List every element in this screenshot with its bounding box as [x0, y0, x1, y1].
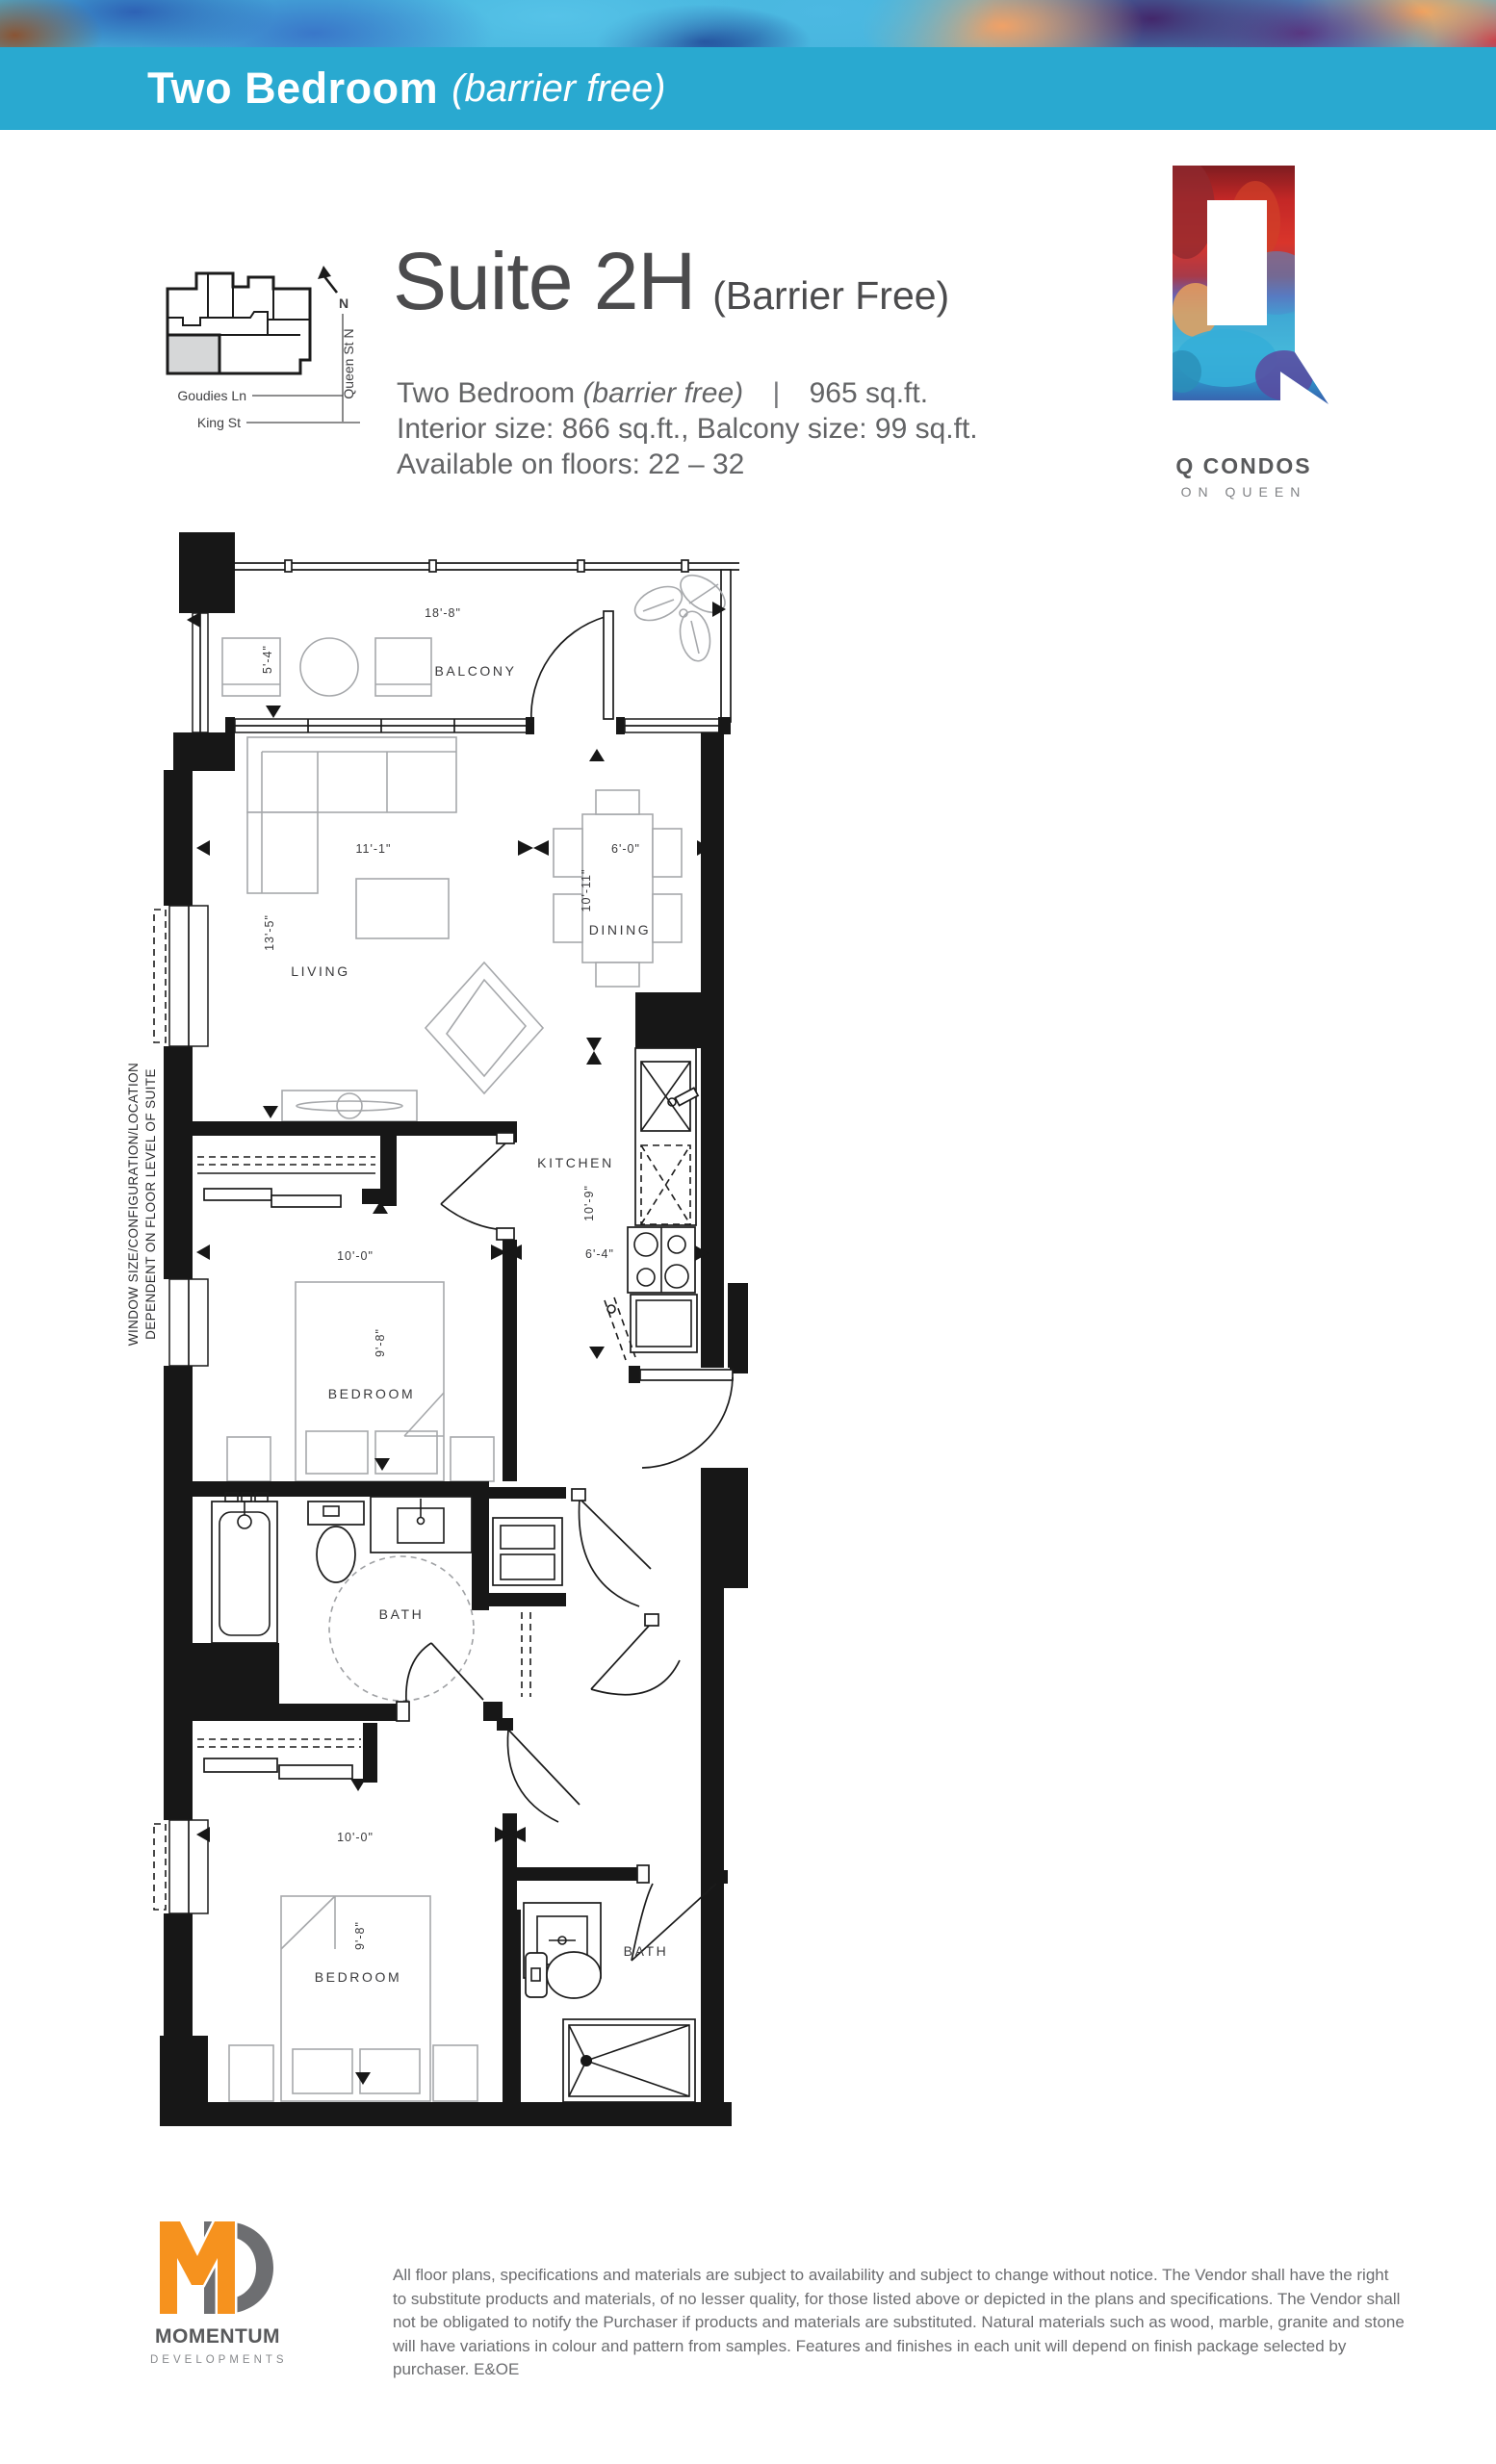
goudies-lane: Goudies Ln [177, 388, 343, 403]
turning-circle [329, 1556, 474, 1701]
dim-living-width: 11'-1" [356, 842, 392, 856]
queen-street-label: Queen St N [341, 328, 356, 398]
brand-tagline: ON QUEEN [1157, 484, 1330, 500]
q-condos-logo: Q CONDOS ON QUEEN [1157, 166, 1330, 500]
bedroom2: 10'-0" 9'-8" BEDROOM [196, 1723, 526, 2101]
kitchen-sink [641, 1062, 698, 1131]
coffee-table [356, 879, 449, 938]
marker-down [589, 1347, 605, 1359]
north-label: N [339, 295, 348, 311]
q-mark [1157, 166, 1330, 435]
balcony: 18'-8" 5'-4" BALCONY [173, 532, 739, 771]
dining-room: 6'-0" 10'-11" DINING [554, 790, 682, 987]
category-banner: Two Bedroom (barrier free) [0, 47, 1496, 130]
suite-qualifier: (Barrier Free) [712, 273, 949, 319]
building-footprint [168, 273, 310, 373]
balcony-table [300, 638, 358, 696]
category-title: Two Bedroom [147, 64, 438, 114]
momentum-logo [154, 2221, 279, 2318]
window-note-line1: WINDOW SIZE/CONFIGURATION/LOCATION [125, 1000, 142, 1408]
dim-bedroom2-depth: 9'-8" [353, 1921, 367, 1950]
dim-balcony-depth: 5'-4" [261, 645, 274, 674]
location-keymap: N Queen St N Goudies Ln King St [154, 258, 375, 472]
marker-bowtie-vertical [586, 1038, 602, 1051]
nightstand [227, 1437, 271, 1481]
goudies-lane-label: Goudies Ln [177, 388, 246, 403]
suite-number: Suite 2H [393, 235, 695, 328]
developer-subtitle: DEVELOPMENTS [150, 2354, 285, 2366]
bedroom2-label: BEDROOM [315, 1969, 402, 1985]
marker-up [589, 749, 605, 761]
north-arrow: N [318, 266, 348, 311]
shower [563, 2019, 695, 2102]
separator: | [772, 377, 780, 409]
marker-down [263, 1106, 278, 1118]
q-mark-counter [1207, 200, 1267, 325]
brand-name: Q CONDOS [1157, 453, 1330, 479]
balcony-label: BALCONY [434, 663, 516, 679]
suite-heading: Suite 2H (Barrier Free) [393, 235, 949, 328]
nightstand [451, 1437, 494, 1481]
marker-bowtie-vertical [586, 1051, 602, 1065]
legal-disclaimer: All floor plans, specifications and mate… [393, 2264, 1406, 2382]
summary-line-1: Two Bedroom (barrier free) | 965 sq.ft. [397, 375, 978, 411]
unit-type: Two Bedroom [397, 377, 575, 409]
bathtub [212, 1493, 277, 1643]
balcony-door [531, 611, 613, 723]
suite-summary: Two Bedroom (barrier free) | 965 sq.ft. … [397, 375, 978, 482]
header-artwork-strip [0, 0, 1496, 47]
bed [296, 1282, 444, 1481]
bath1-door [397, 1643, 503, 1721]
marker-left [196, 840, 210, 856]
toilet [526, 1952, 601, 1998]
available-floors: Available on floors: 22 – 32 [397, 447, 978, 482]
king-street-label: King St [197, 415, 241, 430]
marker-down [350, 1779, 366, 1791]
marker-down [266, 706, 281, 718]
dim-bedroom2-width: 10'-0" [337, 1831, 374, 1844]
dim-dining-width: 6'-0" [611, 842, 640, 856]
dim-kitchen-width: 6'-4" [585, 1247, 614, 1261]
kitchen-label: KITCHEN [537, 1155, 614, 1170]
bottom-wall [204, 2102, 732, 2126]
entry-door [629, 1354, 748, 2102]
bedroom1-label: BEDROOM [328, 1386, 416, 1401]
sofa [247, 737, 456, 893]
unit-type-note: (barrier free) [582, 377, 743, 409]
marker-bowtie [533, 840, 549, 856]
fridge [605, 1295, 697, 1360]
dim-living-depth: 13'-5" [263, 914, 276, 951]
bedroom2-hall-door [497, 1718, 580, 1822]
tv-console [282, 1091, 417, 1121]
bedroom1: 10'-0" 9'-8" BEDROOM [193, 1106, 522, 1481]
dim-bedroom1-width: 10'-0" [337, 1249, 374, 1263]
living-label: LIVING [291, 963, 350, 979]
developer-name: MOMENTUM [150, 2325, 285, 2348]
dim-bedroom1-depth: 9'-8" [374, 1328, 387, 1357]
interior-balcony-sizes: Interior size: 866 sq.ft., Balcony size:… [397, 411, 978, 447]
stove [628, 1227, 695, 1293]
nightstand [433, 2045, 477, 2101]
left-exterior-wall [154, 770, 208, 2126]
category-subtitle: (barrier free) [451, 67, 665, 111]
floorplan-drawing: 18'-8" 5'-4" BALCONY [144, 525, 761, 2142]
bath2: BATH [503, 1865, 728, 2102]
highlighted-suite [168, 335, 219, 373]
bath1: BATH [193, 1481, 503, 1721]
bedroom2-closet [197, 1723, 377, 1791]
marker-bowtie [518, 840, 533, 856]
king-street: King St [197, 415, 360, 430]
dining-label: DINING [589, 922, 652, 937]
logo-m [160, 2221, 235, 2314]
bath1-label: BATH [379, 1606, 425, 1622]
marker-left [196, 1245, 210, 1260]
dim-kitchen-depth: 10'-9" [582, 1185, 596, 1221]
dim-balcony-width: 18'-8" [425, 606, 461, 620]
bath2-label: BATH [624, 1943, 669, 1959]
nightstand [229, 2045, 273, 2101]
bedroom1-door [441, 1133, 514, 1240]
total-area: 965 sq.ft. [810, 377, 928, 409]
dim-dining-depth: 10'-11" [580, 869, 593, 912]
balcony-chair [375, 638, 431, 696]
vanity-sink [371, 1497, 472, 1553]
area-rug [426, 962, 543, 1093]
plant-icon [630, 568, 732, 663]
floorplan-sheet: Two Bedroom (barrier free) N Queen St N … [0, 0, 1496, 2464]
toilet [308, 1501, 364, 1582]
